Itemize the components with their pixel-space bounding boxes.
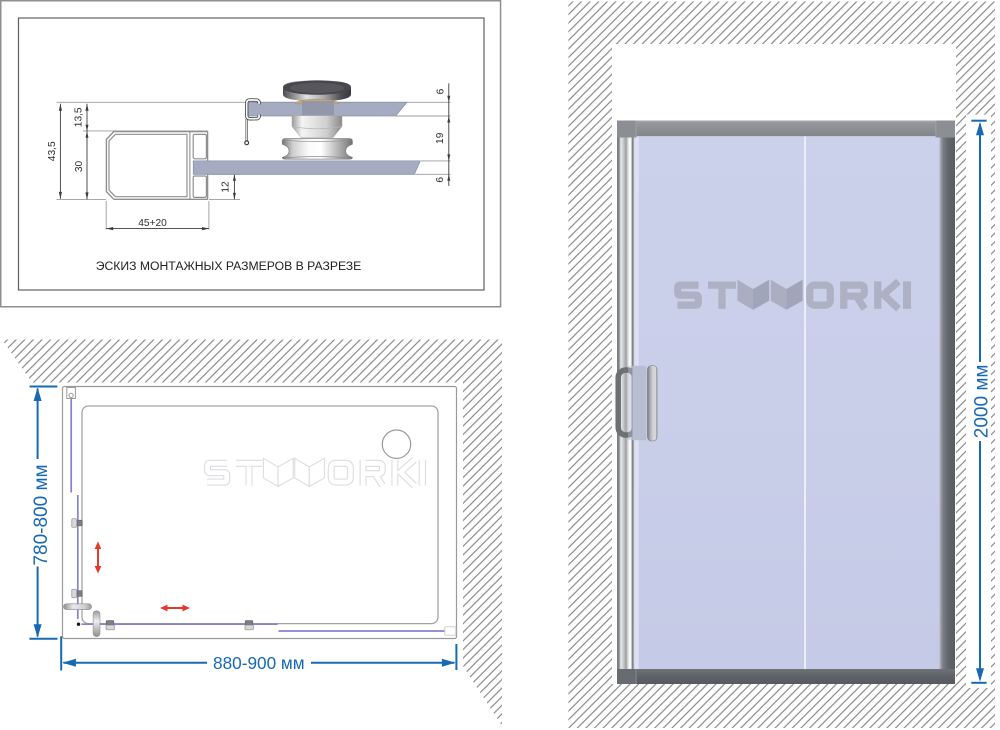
svg-text:2000 мм: 2000 мм: [971, 365, 992, 439]
svg-text:780-800 мм: 780-800 мм: [31, 464, 52, 565]
svg-text:43,5: 43,5: [47, 141, 58, 161]
svg-text:30: 30: [74, 161, 85, 173]
svg-text:6: 6: [435, 177, 446, 183]
svg-text:12: 12: [221, 181, 232, 193]
svg-text:ЭСКИЗ МОНТАЖНЫХ РАЗМЕРОВ В РАЗ: ЭСКИЗ МОНТАЖНЫХ РАЗМЕРОВ В РАЗРЕЗЕ: [96, 259, 362, 273]
svg-text:6: 6: [435, 88, 446, 94]
svg-text:880-900 мм: 880-900 мм: [213, 653, 305, 673]
svg-text:13,5: 13,5: [73, 107, 84, 127]
svg-text:19: 19: [435, 132, 446, 144]
svg-text:45+20: 45+20: [138, 218, 167, 229]
